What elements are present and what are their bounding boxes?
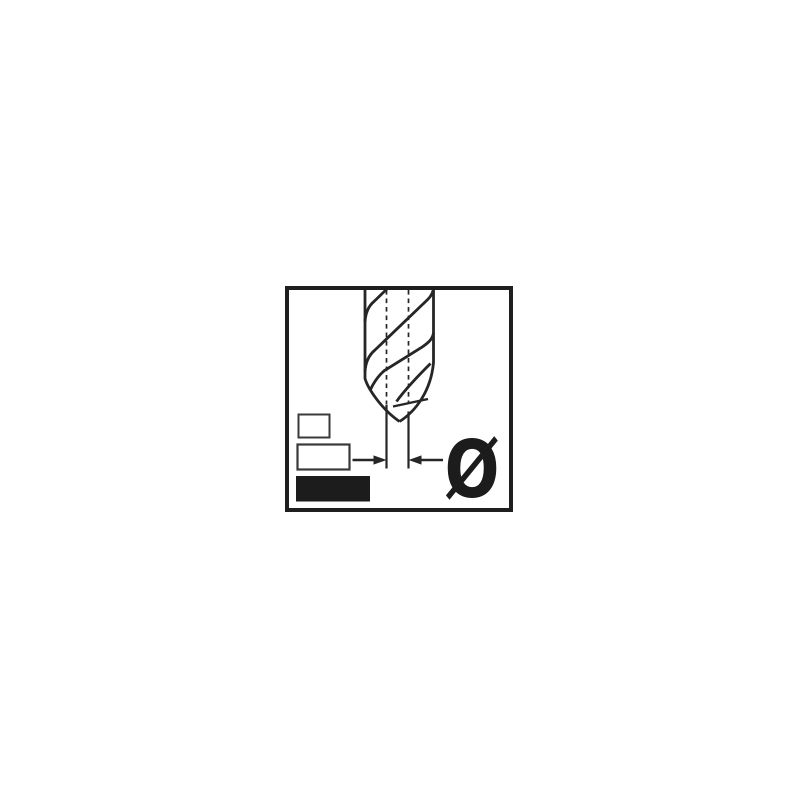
legend-rect-filled (296, 476, 370, 502)
pictogram-canvas: Ø (0, 0, 800, 800)
legend-rect-small (299, 415, 330, 438)
drill-bit-illustration (365, 286, 434, 422)
legend-rect-medium (298, 445, 350, 470)
diameter-symbol-group: Ø (444, 425, 499, 517)
dimension-arrow-right-head (409, 455, 422, 464)
diameter-symbol: Ø (444, 425, 499, 517)
drill-flute-line-3 (371, 333, 434, 390)
pictogram-svg: Ø (0, 0, 800, 800)
size-legend (296, 415, 370, 502)
dimension-arrow-left-head (374, 455, 387, 464)
drill-point-flute-curve (397, 364, 431, 402)
